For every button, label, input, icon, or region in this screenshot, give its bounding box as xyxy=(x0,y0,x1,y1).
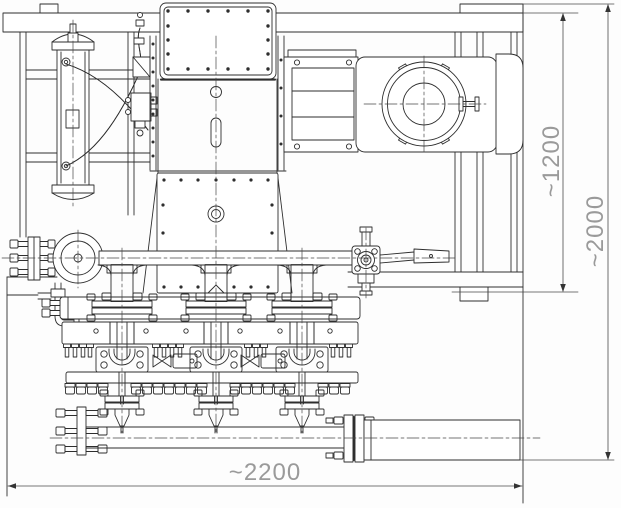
inlet-flange xyxy=(10,237,55,280)
pump-fluid-end xyxy=(42,297,360,394)
dimension-overall-width: ~2200 xyxy=(8,459,522,489)
lever-valve xyxy=(352,227,449,295)
dim-label-2000: ~2000 xyxy=(582,195,609,267)
gearbox xyxy=(150,3,286,173)
dimension-overall-height: ~2000 xyxy=(520,4,614,460)
motor-fan-cover xyxy=(496,54,523,154)
outlet-pipe xyxy=(364,420,520,460)
technical-drawing-canvas: ~1200 ~2000 ~2200 xyxy=(0,0,621,508)
pump-unit-drawing: ~1200 ~2000 ~2200 xyxy=(0,0,621,508)
coupling-housing xyxy=(284,50,358,152)
lubricator-block xyxy=(126,57,158,136)
dim-label-2200: ~2200 xyxy=(229,459,301,486)
discharge-manifold xyxy=(56,407,520,462)
dim-label-1200: ~1200 xyxy=(538,125,565,197)
crankcase-cover xyxy=(143,173,292,293)
